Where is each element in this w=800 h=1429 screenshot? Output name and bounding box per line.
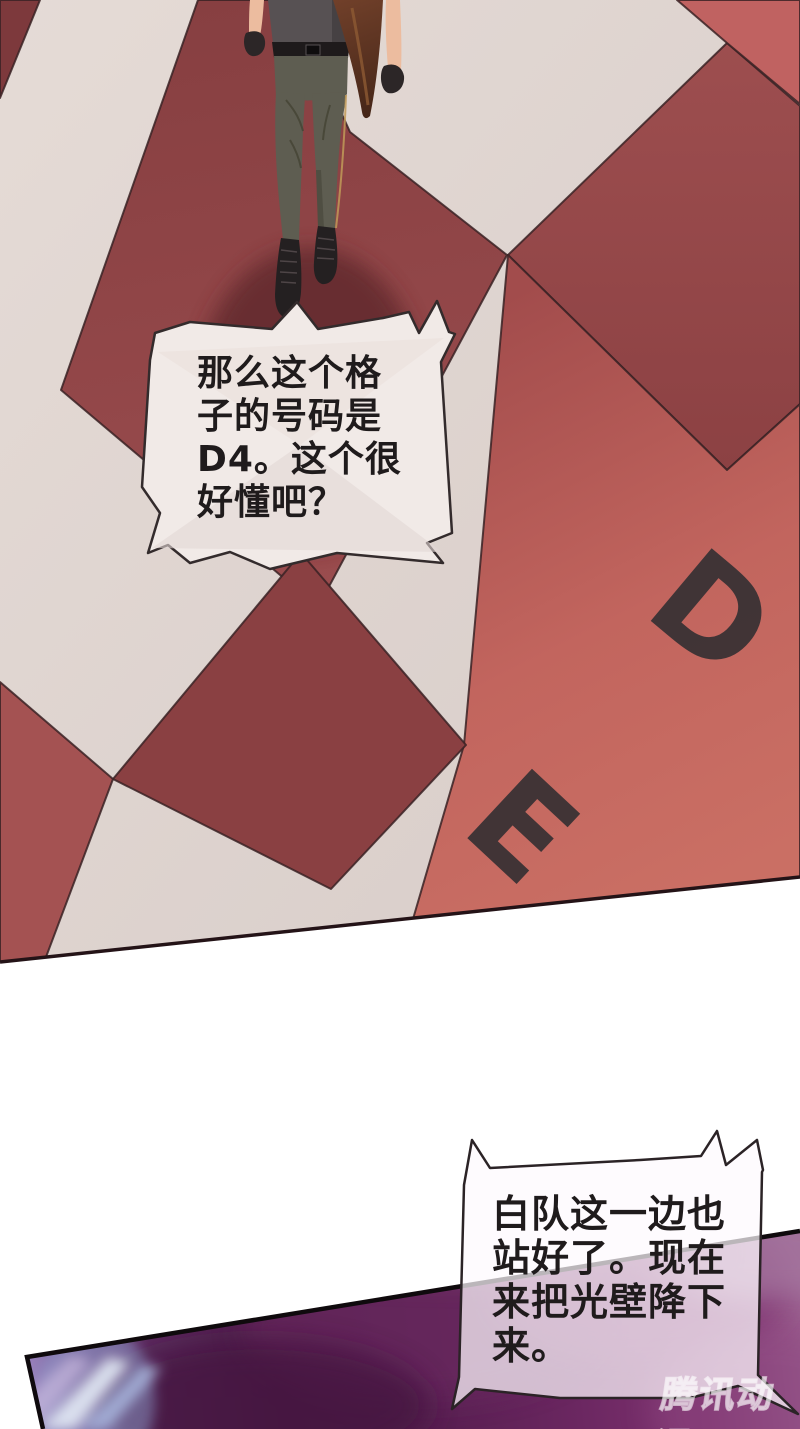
watermark: 腾讯动漫 bbox=[651, 1366, 800, 1429]
character-back-boot bbox=[314, 226, 338, 284]
comic-page: D E bbox=[0, 0, 800, 1429]
character-right-arm bbox=[386, 0, 402, 70]
bubble-2-text: 白队这一边也 站好了。现在 来把光壁降下 来。 bbox=[492, 1192, 792, 1368]
character-belt-buckle bbox=[306, 45, 320, 55]
bubble-1-text: 那么这个格 子的号码是 D4。这个很 好懂吧？ bbox=[197, 352, 477, 524]
